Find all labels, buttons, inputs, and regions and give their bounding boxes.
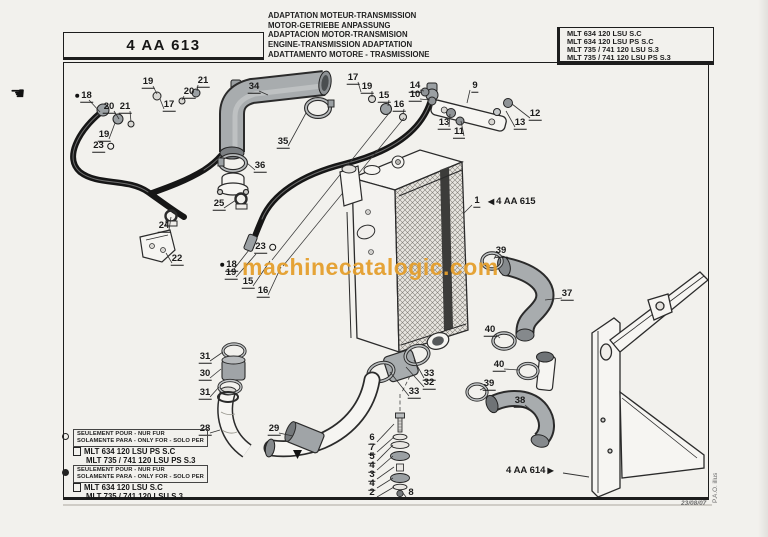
legend-note-line: SEULEMENT POUR - NUR FUR xyxy=(77,467,204,474)
scan-shadow xyxy=(63,504,712,506)
title-it: ADATTAMENTO MOTORE - TRASMISSIONE xyxy=(268,50,429,60)
legend-model-text: MLT 634 120 LSU PS S.C xyxy=(84,447,175,456)
legend-model-line: MLT 735 / 741 120 LSU S.3 xyxy=(86,492,208,501)
page-reference: 4 AA 613 xyxy=(126,37,200,54)
legend-note-line: SOLAMENTE PARA - ONLY FOR - SOLO PER xyxy=(77,474,204,481)
multilingual-title: ADAPTATION MOTEUR-TRANSMISSION MOTOR-GET… xyxy=(268,11,429,60)
title-es: ADAPTACION MOTOR-TRANSMISION xyxy=(268,30,429,40)
open-circle-marker-icon xyxy=(62,433,69,440)
revision-date: 23/08/07 xyxy=(681,500,706,507)
legend-note-box: SEULEMENT POUR - NUR FUR SOLAMENTE PARA … xyxy=(73,429,208,447)
legend-model-text: MLT 634 120 LSU S.C xyxy=(84,483,163,492)
cross-ref-4aa615: ◀ 4 AA 615 xyxy=(488,196,536,207)
illustrator-note: P.A.O. illus xyxy=(712,473,719,503)
legend-note-box: SEULEMENT POUR - NUR FUR SOLAMENTE PARA … xyxy=(73,465,208,483)
model-list-box: MLT 634 120 LSU S.C MLT 634 120 LSU PS S… xyxy=(557,27,714,65)
legend-model-line: MLT 634 120 LSU S.C xyxy=(73,483,208,492)
bracket-icon xyxy=(77,447,81,456)
hand-cursor-icon: ☚ xyxy=(10,84,25,104)
title-de: MOTOR-GETRIEBE ANPASSUNG xyxy=(268,21,429,31)
filled-circle-marker-icon xyxy=(62,469,69,476)
legend-note-line: SOLAMENTE PARA - ONLY FOR - SOLO PER xyxy=(77,438,204,445)
legend-ps-variants: SEULEMENT POUR - NUR FUR SOLAMENTE PARA … xyxy=(64,429,208,465)
watermark-text: machinecatalogic.com xyxy=(242,254,499,281)
legend-lsu-variants: SEULEMENT POUR - NUR FUR SOLAMENTE PARA … xyxy=(64,465,208,501)
arrow-right-icon: ▶ xyxy=(547,467,553,475)
legend-model-line: MLT 634 120 LSU PS S.C xyxy=(73,447,208,456)
legend-note-line: SEULEMENT POUR - NUR FUR xyxy=(77,431,204,438)
arrow-left-icon: ◀ xyxy=(488,198,494,206)
page-reference-box: 4 AA 613 xyxy=(63,32,264,60)
model-line: MLT 735 / 741 120 LSU PS S.3 xyxy=(567,54,713,62)
cross-ref-label: 4 AA 615 xyxy=(496,196,535,207)
title-fr: ADAPTATION MOTEUR-TRANSMISSION xyxy=(268,11,429,21)
cross-ref-label: 4 AA 614 xyxy=(506,465,545,476)
catalog-page: 4 AA 613 ADAPTATION MOTEUR-TRANSMISSION … xyxy=(0,0,768,537)
title-en: ENGINE-TRANSMISSION ADAPTATION xyxy=(268,40,429,50)
scan-shadow xyxy=(758,0,768,537)
bracket-icon xyxy=(77,483,81,492)
cross-ref-4aa614: 4 AA 614 ▶ xyxy=(506,465,554,476)
legend-model-line: MLT 735 / 741 120 LSU PS S.3 xyxy=(86,456,208,465)
